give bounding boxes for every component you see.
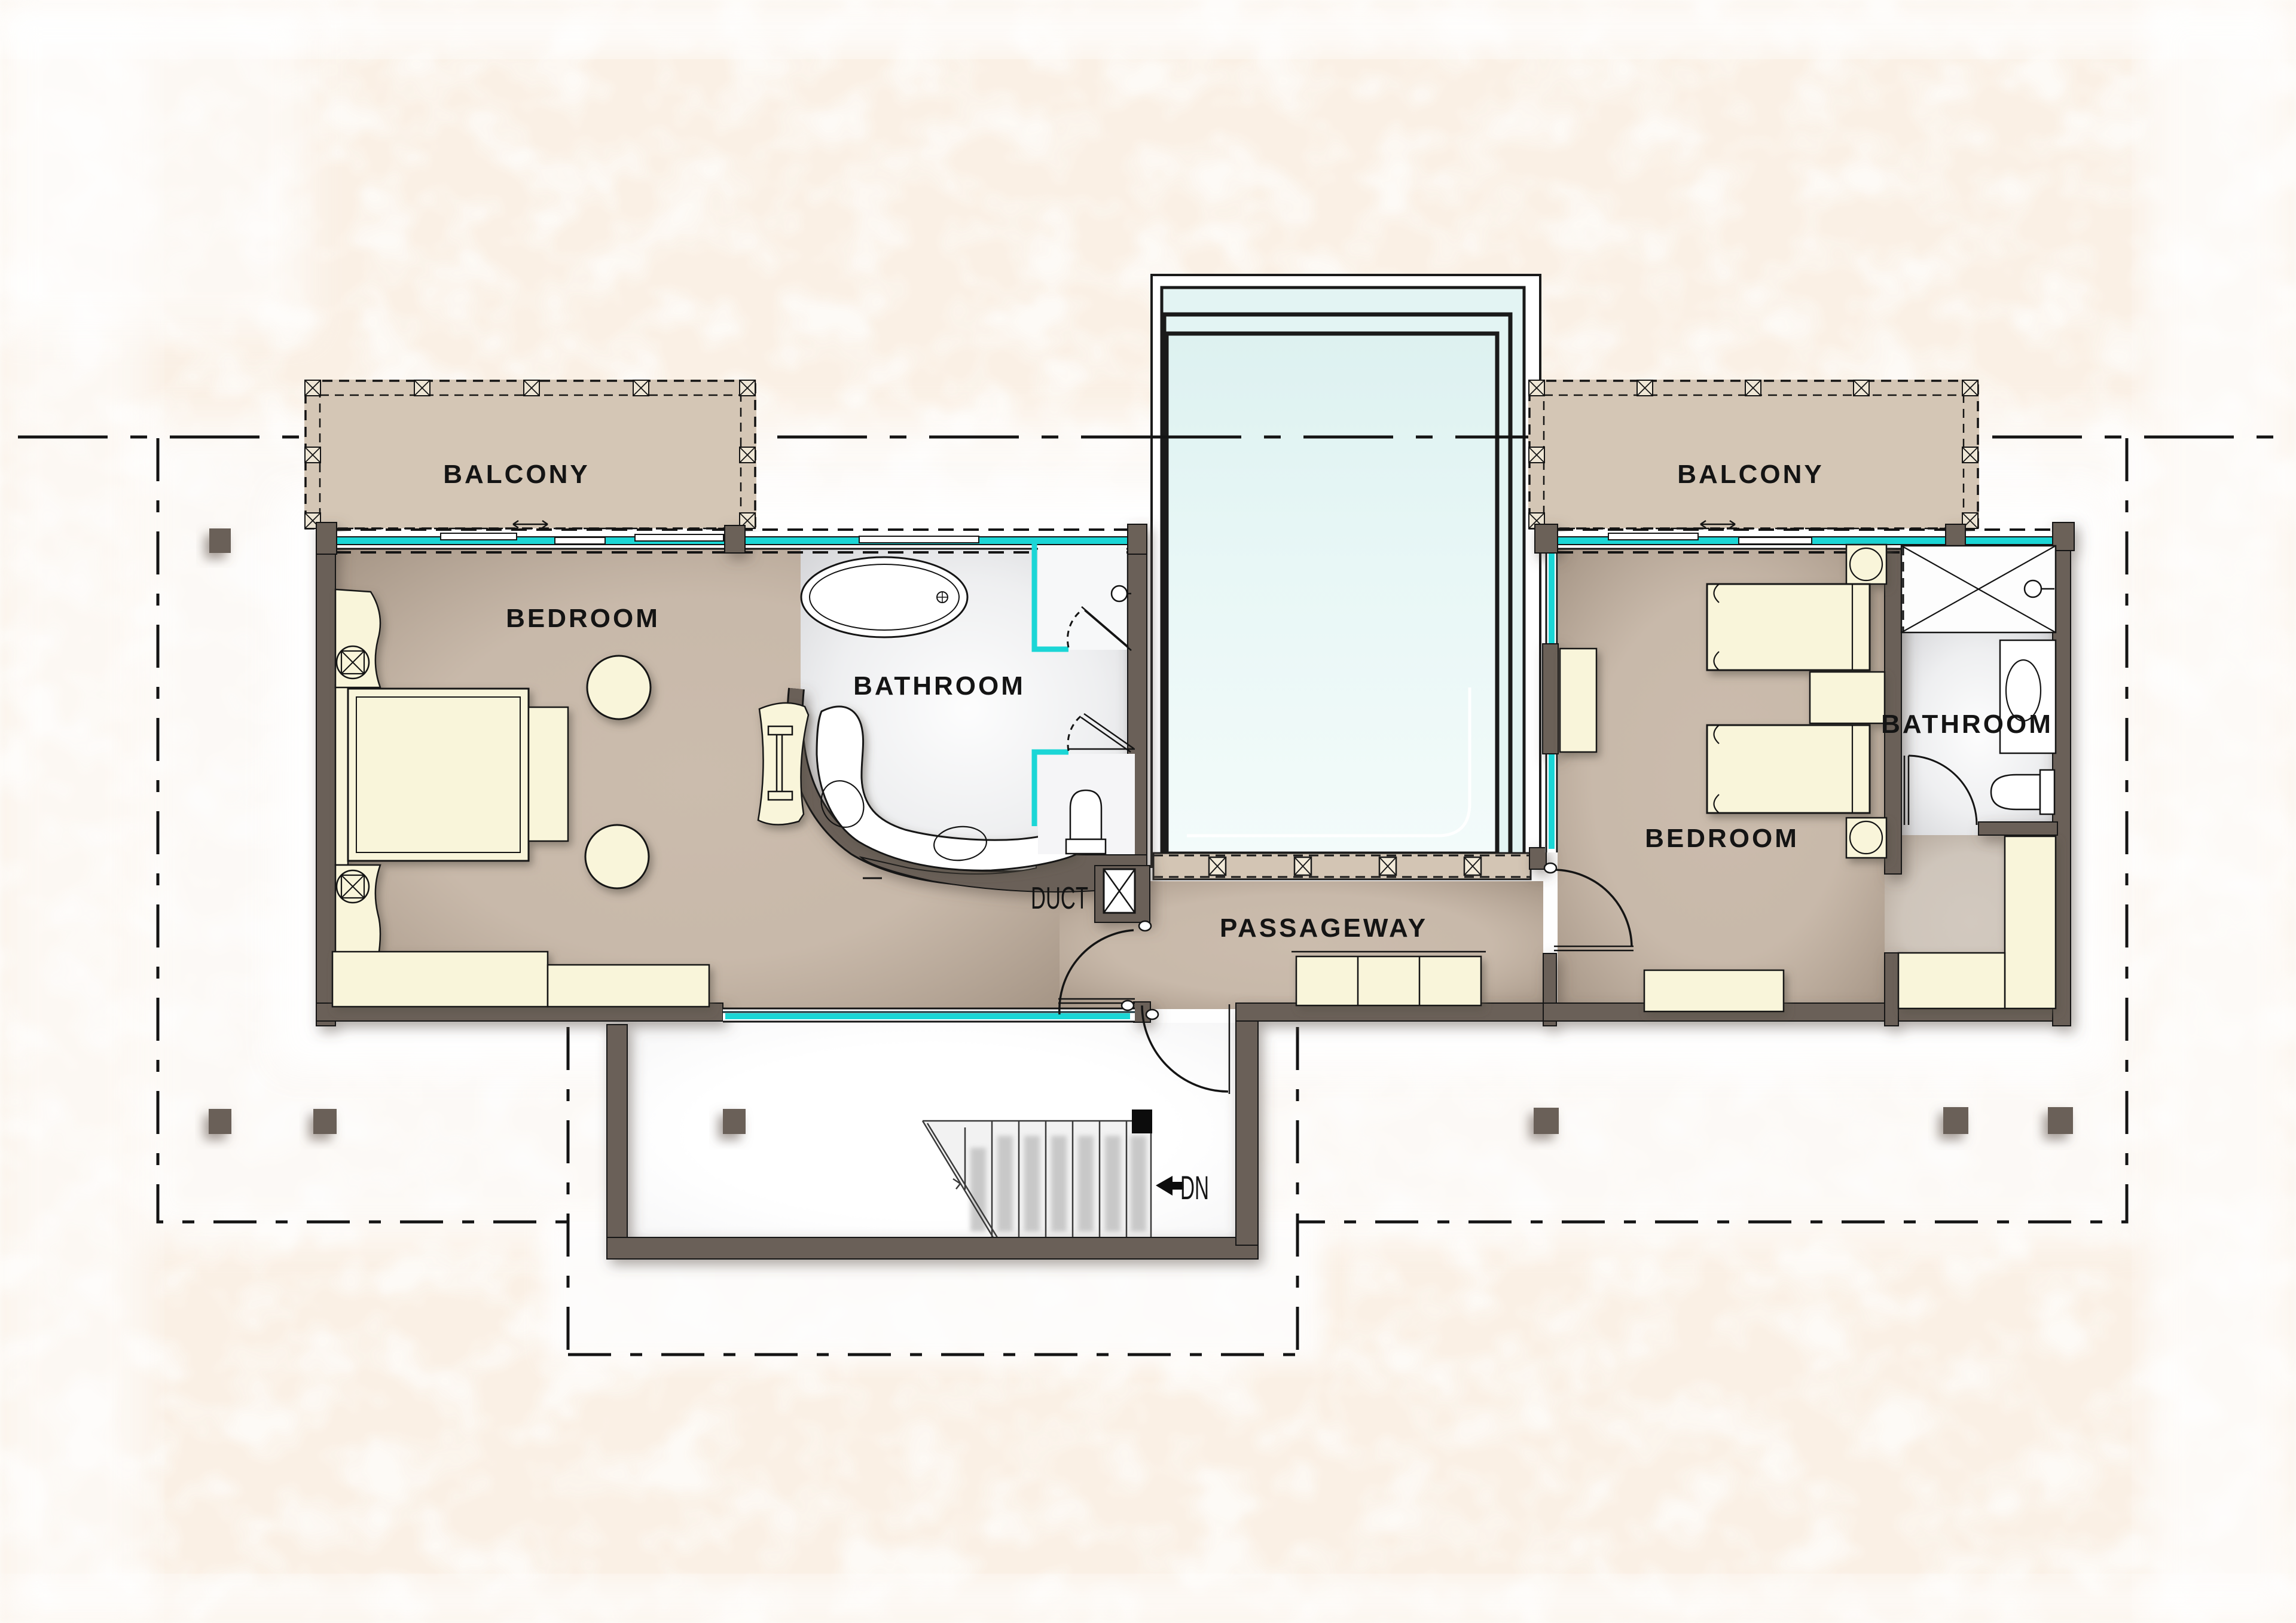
svg-text:BEDROOM: BEDROOM <box>1645 824 1799 853</box>
svg-text:DN: DN <box>1180 1169 1209 1206</box>
svg-text:BATHROOM: BATHROOM <box>853 671 1025 701</box>
svg-text:BATHROOM: BATHROOM <box>1881 710 2053 739</box>
svg-text:BALCONY: BALCONY <box>1677 460 1824 489</box>
svg-text:BALCONY: BALCONY <box>443 460 590 489</box>
svg-text:DUCT: DUCT <box>1031 881 1088 916</box>
svg-text:BEDROOM: BEDROOM <box>506 604 660 633</box>
svg-text:PASSAGEWAY: PASSAGEWAY <box>1220 913 1428 943</box>
